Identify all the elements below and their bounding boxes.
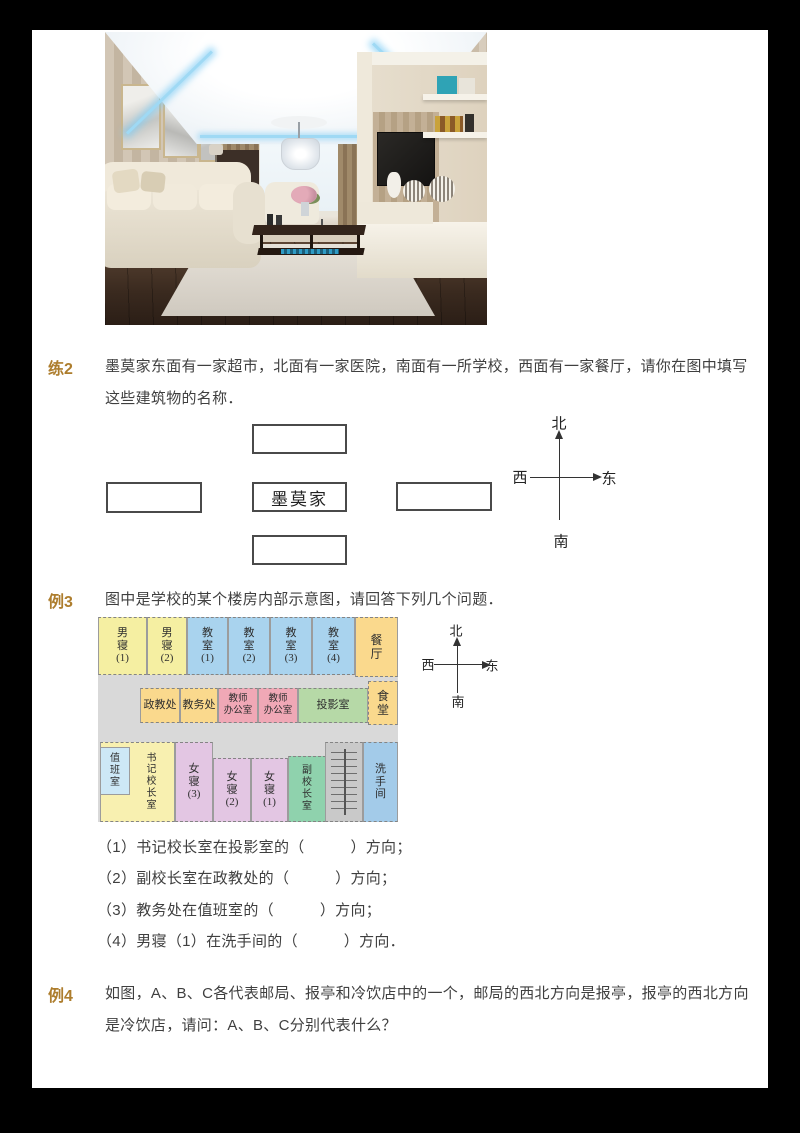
momo-home-box: 墨莫家 xyxy=(252,482,347,512)
practice2-text-line1: 墨莫家东面有一家超市，北面有一家医院，南面有一所学校，西面有一家餐厅，请你在图中… xyxy=(105,355,748,376)
books-row xyxy=(435,116,463,132)
example3-intro: 图中是学校的某个楼房内部示意图，请回答下列几个问题． xyxy=(105,588,503,609)
shelf xyxy=(423,132,487,138)
tv-screen xyxy=(377,132,435,186)
stairs-rail xyxy=(344,749,346,815)
stairs xyxy=(325,742,363,822)
room-classroom-4: 教 室 (4) xyxy=(312,617,355,675)
room-canteen: 食 堂 xyxy=(368,681,398,725)
vase xyxy=(387,172,401,198)
compass-east-label: 东 xyxy=(601,468,616,489)
compass-north-arrow xyxy=(453,637,461,646)
room-girls-dorm-2: 女 寝 (2) xyxy=(213,758,251,822)
compass-east-arrow xyxy=(593,473,602,481)
answer-box-west[interactable] xyxy=(106,482,202,513)
room-washroom: 洗 手 间 xyxy=(363,742,398,822)
compass-example3: 北 南 西 东 xyxy=(420,622,510,717)
room-boys-dorm-2: 男 寝 (2) xyxy=(147,617,187,675)
room-academic-office: 教务处 xyxy=(180,688,218,723)
compass-horizontal-line xyxy=(434,664,484,665)
coffee-table-top xyxy=(252,225,366,235)
book xyxy=(437,76,457,94)
room-classroom-1: 教 室 (1) xyxy=(187,617,228,675)
table-blue-decor xyxy=(281,249,339,254)
room-teacher-office-1: 教师 办公室 xyxy=(218,688,258,723)
room-boys-dorm-1: 男 寝 (1) xyxy=(98,617,147,675)
school-floorplan: 男 寝 (1) 男 寝 (2) 教 室 (1) 教 室 (2) 教 室 (3) … xyxy=(98,617,398,822)
sofa-pillow xyxy=(140,171,166,193)
floor-lamp xyxy=(209,144,223,155)
compass-vertical-line xyxy=(559,437,561,520)
practice2-label: 练2 xyxy=(48,355,73,379)
cabinet-step xyxy=(357,202,433,224)
compass-south-label: 南 xyxy=(451,692,464,711)
sofa-pillow xyxy=(112,168,141,193)
answer-box-north[interactable] xyxy=(252,424,347,454)
room-vice-principal-office: 副 校 长 室 xyxy=(288,756,326,822)
example3-label: 例3 xyxy=(48,588,73,612)
room-girls-dorm-3: 女 寝 (3) xyxy=(175,742,213,822)
room-dining-hall: 餐 厅 xyxy=(355,617,398,677)
compass-west-label: 西 xyxy=(512,467,527,488)
paper: 练2 墨莫家东面有一家超市，北面有一家医院，南面有一所学校，西面有一家餐厅，请你… xyxy=(32,30,768,1088)
room-classroom-2: 教 室 (2) xyxy=(228,617,270,675)
book xyxy=(459,78,475,94)
table-items xyxy=(267,214,273,225)
answer-box-south[interactable] xyxy=(252,535,347,565)
example4-text-line1: 如图，A、B、C各代表邮局、报亭和冷饮店中的一个，邮局的西北方向是报亭，报亭的西… xyxy=(105,982,749,1003)
striped-sphere-vase xyxy=(403,180,425,202)
example3-question-3: （3）教务处在值班室的（ ）方向； xyxy=(97,899,381,920)
example4-text-line2: 是冷饮店，请问：A、B、C分别代表什么？ xyxy=(105,1014,397,1035)
answer-box-east[interactable] xyxy=(396,482,492,511)
compass-west-label: 西 xyxy=(421,655,434,674)
compass-south-label: 南 xyxy=(553,531,568,552)
room-teacher-office-2: 教师 办公室 xyxy=(258,688,298,723)
room-secretary-principal-label: 书 记 校 长 室 xyxy=(129,743,174,821)
room-political-office: 政教处 xyxy=(140,688,180,723)
worksheet-page: { "frame": {"border_color": "#000000", "… xyxy=(0,0,800,1133)
example4-label: 例4 xyxy=(48,982,73,1006)
compass-east-arrow xyxy=(482,661,491,669)
example3-question-4: （4）男寝（1）在洗手间的（ ）方向． xyxy=(97,930,405,951)
compass-practice2: 北 南 西 东 xyxy=(510,413,620,553)
room-projection-room: 投影室 xyxy=(298,688,368,723)
compass-vertical-line xyxy=(457,643,458,693)
room-classroom-3: 教 室 (3) xyxy=(270,617,312,675)
compass-horizontal-line xyxy=(530,477,594,479)
practice2-text-line2: 这些建筑物的名称． xyxy=(105,387,243,408)
room-duty-room: 值 班 室 xyxy=(100,747,130,795)
example3-question-2: （2）副校长室在政教处的（ ）方向； xyxy=(97,867,396,888)
striped-sphere-vase xyxy=(429,176,455,202)
compass-north-arrow xyxy=(555,430,563,439)
table-leg xyxy=(260,235,263,248)
room-girls-dorm-1: 女 寝 (1) xyxy=(251,758,288,822)
living-room-photo xyxy=(105,32,487,325)
flower-vase xyxy=(301,202,309,216)
example3-question-1: （1）书记校长室在投影室的（ ）方向； xyxy=(97,836,412,857)
chandelier xyxy=(281,138,320,170)
book xyxy=(465,114,474,132)
lower-cabinet xyxy=(357,222,487,278)
unit-top-shelf xyxy=(357,52,487,65)
shelf xyxy=(423,94,487,100)
